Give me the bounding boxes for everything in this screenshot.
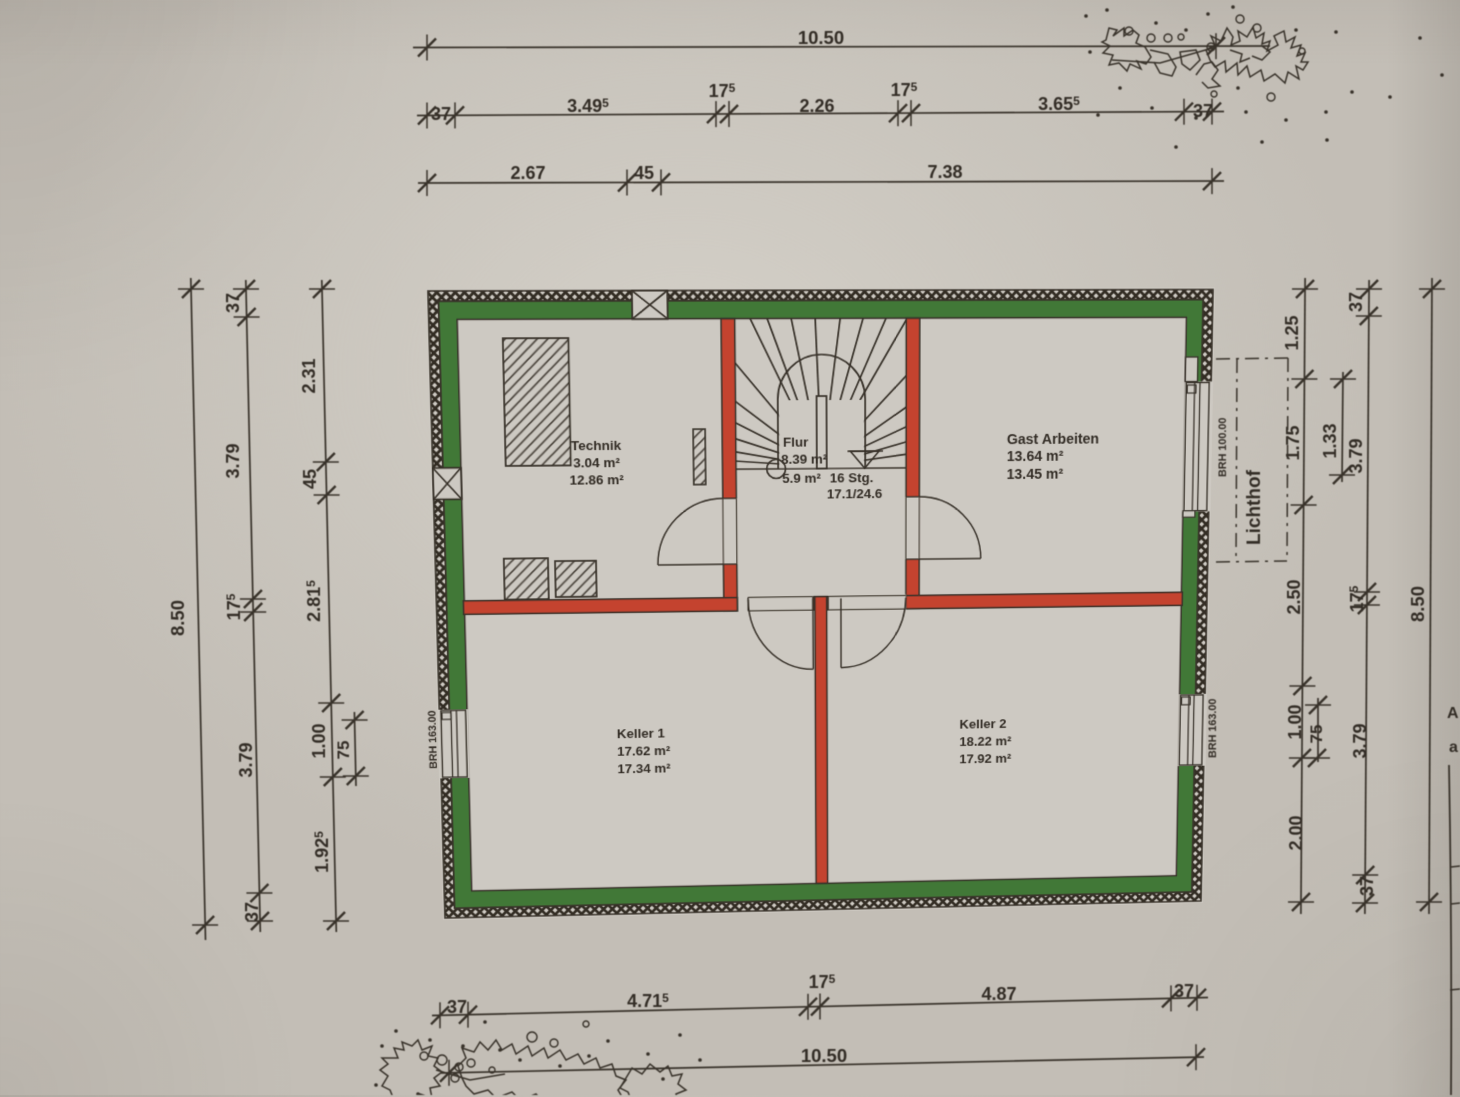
svg-text:8.50: 8.50 [1407, 586, 1428, 622]
svg-text:45: 45 [634, 163, 654, 183]
svg-text:3.79: 3.79 [223, 443, 243, 478]
svg-text:2.815: 2.815 [304, 580, 324, 622]
svg-text:1.925: 1.925 [312, 831, 332, 873]
svg-text:175: 175 [891, 80, 918, 100]
svg-text:2.31: 2.31 [299, 358, 319, 393]
svg-text:45: 45 [300, 469, 320, 489]
svg-text:3.79: 3.79 [236, 742, 256, 777]
svg-text:175: 175 [224, 593, 244, 620]
svg-text:7.38: 7.38 [927, 162, 962, 182]
svg-text:37: 37 [1357, 876, 1377, 896]
svg-text:175: 175 [709, 81, 736, 101]
svg-text:3.655: 3.655 [1038, 94, 1080, 114]
svg-text:Lichthof: Lichthof [1244, 469, 1265, 545]
svg-text:75: 75 [1307, 725, 1326, 744]
svg-text:10.50: 10.50 [798, 27, 844, 48]
svg-text:3.495: 3.495 [567, 96, 609, 116]
svg-text:2.26: 2.26 [799, 96, 834, 116]
svg-text:4.87: 4.87 [981, 984, 1016, 1004]
svg-text:37: 37 [447, 997, 467, 1017]
svg-text:1.25: 1.25 [1282, 315, 1302, 350]
svg-text:8.50: 8.50 [167, 600, 188, 636]
svg-text:A: A [1447, 705, 1459, 722]
svg-text:BRH 163.00: BRH 163.00 [1207, 699, 1219, 758]
svg-text:37: 37 [242, 902, 262, 922]
svg-text:BRH 100.00: BRH 100.00 [1217, 418, 1229, 477]
svg-text:37: 37 [1174, 981, 1194, 1001]
svg-text:10.50: 10.50 [801, 1045, 847, 1066]
svg-text:3.79: 3.79 [1346, 438, 1366, 473]
svg-text:37: 37 [1346, 292, 1366, 312]
svg-text:175: 175 [1347, 585, 1367, 612]
svg-text:1.75: 1.75 [1283, 425, 1303, 460]
svg-text:4.715: 4.715 [627, 991, 669, 1011]
svg-text:1.00: 1.00 [1285, 704, 1305, 739]
svg-text:1.33: 1.33 [1320, 423, 1340, 458]
svg-text:2.50: 2.50 [1284, 579, 1304, 614]
svg-text:175: 175 [809, 972, 836, 992]
svg-text:37: 37 [223, 293, 243, 313]
svg-text:75: 75 [334, 741, 353, 760]
svg-text:37: 37 [431, 104, 451, 124]
svg-text:2.67: 2.67 [510, 163, 545, 183]
svg-text:1.00: 1.00 [309, 723, 329, 758]
svg-text:a: a [1449, 739, 1458, 756]
svg-text:2.00: 2.00 [1286, 815, 1306, 850]
svg-text:3.79: 3.79 [1350, 723, 1370, 758]
